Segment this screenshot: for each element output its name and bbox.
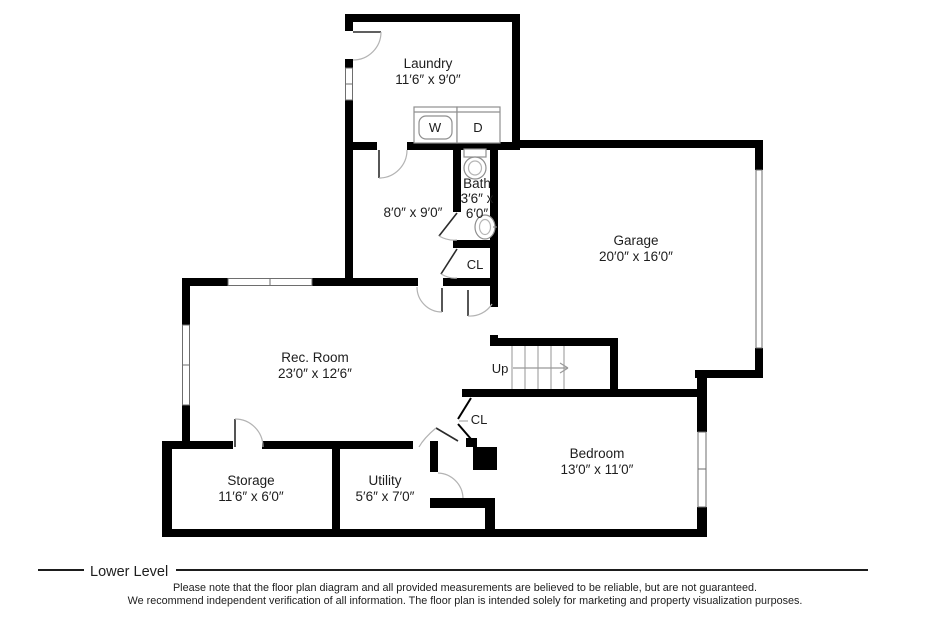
rec-room-north-door — [417, 287, 442, 312]
wall-bedroom-right-a — [697, 370, 707, 432]
storage-label: Storage — [227, 473, 274, 488]
wall-strip-top-a — [162, 441, 233, 449]
storage-dimensions: 11′6″ x 6′0″ — [218, 489, 284, 504]
wall-rec-left-b — [182, 405, 190, 443]
laundry-entry-door — [353, 32, 381, 60]
wall-hall-left — [345, 150, 353, 286]
wall-stairs-top — [495, 338, 618, 346]
floor-plan-page: Laundry 11′6″ x 9′0″ 8′0″ x 9′0″ Bath 3′… — [0, 0, 930, 620]
garage-entry-door — [468, 290, 492, 316]
wall-laundry-right — [512, 14, 520, 148]
toilet-fixture — [464, 149, 486, 179]
wall-laundry-left-a — [345, 14, 353, 31]
garage-door-panel — [756, 170, 762, 348]
wall-bedroom-left — [485, 508, 495, 537]
laundry-hall-door — [379, 150, 407, 178]
wall-laundry-left-b — [345, 59, 353, 68]
wall-rec-top-c — [353, 278, 418, 286]
floor-plan-drawing: Laundry 11′6″ x 9′0″ 8′0″ x 9′0″ Bath 3′… — [0, 0, 930, 620]
bedroom-dimensions: 13′0″ x 11′0″ — [561, 462, 634, 477]
bath-label: Bath — [463, 176, 491, 191]
bath-dimensions-2: 6′0″ — [466, 206, 489, 221]
stairs-up-label: Up — [492, 361, 509, 376]
hall-closet-bifold-door — [458, 398, 471, 439]
wall-storage-utility-divider — [332, 449, 340, 529]
wall-rec-top-a — [182, 278, 228, 286]
wall-nook-bottom-h — [430, 498, 495, 508]
wall-rec-top-b — [312, 278, 353, 286]
garage-label: Garage — [613, 233, 658, 248]
bedroom-label: Bedroom — [570, 446, 625, 461]
wall-laundry-bottom-a — [345, 142, 377, 150]
wall-stub-block — [473, 447, 497, 470]
walls — [162, 14, 763, 537]
wall-strip-top-b — [262, 441, 413, 449]
wall-stairs-bottom — [462, 389, 707, 397]
laundry-dimensions: 11′6″ x 9′0″ — [395, 72, 461, 87]
level-title: Lower Level — [90, 564, 168, 580]
utility-dimensions: 5′6″ x 7′0″ — [356, 489, 415, 504]
laundry-label: Laundry — [404, 56, 453, 71]
rec-room-label: Rec. Room — [281, 350, 349, 365]
utility-door — [438, 473, 463, 498]
wall-utility-right — [430, 441, 438, 472]
garage-dimensions: 20′0″ x 16′0″ — [599, 249, 673, 264]
wall-laundry-top — [345, 14, 520, 22]
hall-dimensions: 8′0″ x 9′0″ — [384, 205, 443, 220]
rec-room-dimensions: 23′0″ x 12′6″ — [278, 366, 352, 381]
bath-closet-label: CL — [467, 257, 484, 272]
bath-closet-door — [441, 249, 457, 278]
wall-storage-left — [162, 441, 172, 537]
disclaimer-line-1: Please note that the floor plan diagram … — [173, 582, 757, 594]
bath-dimensions-1: 3′6″ x — [461, 191, 494, 206]
wall-bifold-stub — [466, 438, 477, 447]
wall-stairs-right — [610, 338, 618, 397]
stair-direction-arrow — [513, 363, 568, 373]
wall-garage-top — [512, 140, 763, 148]
dryer-label: D — [473, 120, 482, 135]
rec-room-nook-door — [419, 428, 458, 447]
doors — [235, 32, 492, 498]
footer: Lower Level Please note that the floor p… — [38, 564, 868, 607]
storage-door — [235, 419, 263, 447]
wall-rec-top-d — [443, 278, 473, 286]
stairs — [512, 346, 568, 389]
wall-bottom-outer — [162, 529, 707, 537]
wall-garage-right-top — [755, 140, 763, 170]
utility-label: Utility — [369, 473, 402, 488]
disclaimer-line-2: We recommend independent verification of… — [128, 595, 803, 607]
hall-closet-label: CL — [471, 412, 488, 427]
washer-label: W — [429, 120, 442, 135]
